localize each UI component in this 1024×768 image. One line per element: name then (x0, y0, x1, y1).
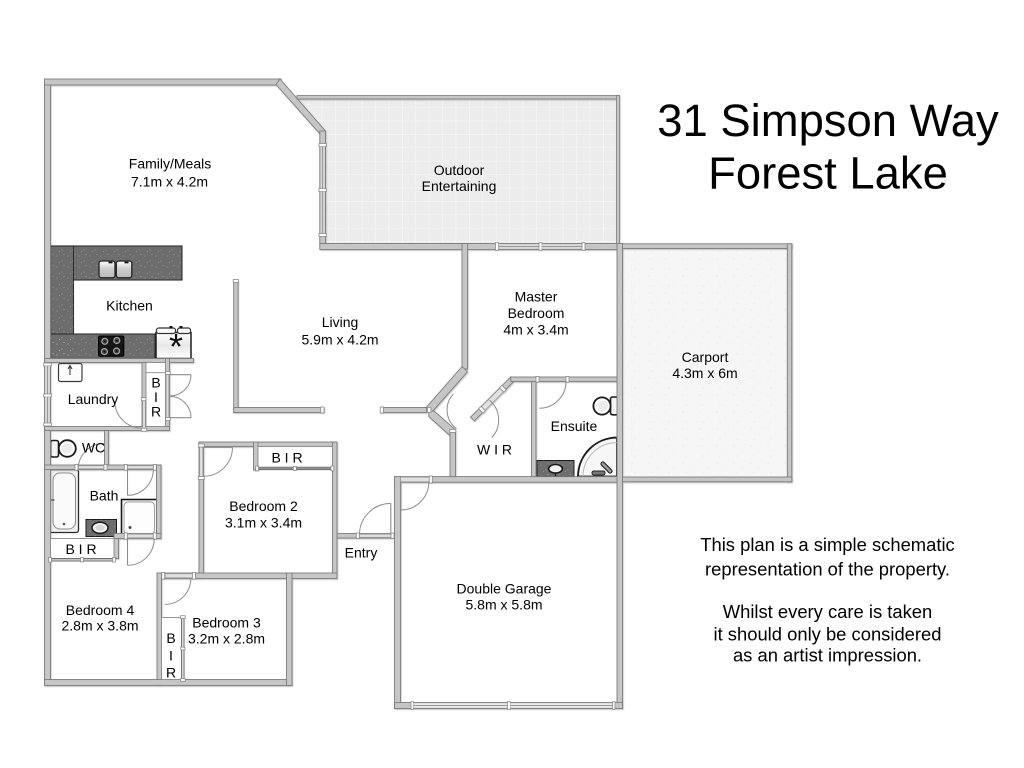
svg-text:Entry: Entry (345, 545, 378, 561)
svg-text:7.1m x 4.2m: 7.1m x 4.2m (131, 174, 208, 190)
svg-text:Laundry: Laundry (68, 391, 119, 407)
svg-text:representation of the property: representation of the property. (705, 559, 950, 580)
svg-text:Ensuite: Ensuite (551, 418, 598, 434)
svg-text:I: I (169, 648, 173, 664)
svg-text:Forest Lake: Forest Lake (708, 148, 948, 199)
svg-text:Double Garage: Double Garage (457, 581, 552, 597)
svg-text:Bedroom: Bedroom (508, 305, 565, 321)
svg-text:Bedroom 4: Bedroom 4 (66, 602, 135, 618)
svg-text:B I R: B I R (65, 541, 96, 557)
svg-text:W I R: W I R (477, 442, 512, 458)
svg-text:R: R (151, 404, 161, 420)
svg-text:WC: WC (82, 440, 105, 456)
svg-text:Bedroom 2: Bedroom 2 (229, 498, 298, 514)
svg-text:Bath: Bath (90, 488, 119, 504)
svg-text:Carport: Carport (682, 349, 729, 365)
svg-text:Kitchen: Kitchen (106, 298, 153, 314)
svg-text:Family/Meals: Family/Meals (129, 156, 211, 172)
svg-text:5.8m x 5.8m: 5.8m x 5.8m (465, 597, 542, 613)
svg-text:it should only be considered: it should only be considered (714, 624, 942, 645)
svg-text:B: B (166, 630, 175, 646)
svg-text:Bedroom 3: Bedroom 3 (192, 615, 261, 631)
svg-text:Outdoor: Outdoor (434, 162, 485, 178)
svg-text:3.1m x 3.4m: 3.1m x 3.4m (225, 515, 302, 531)
svg-text:4.3m x 6m: 4.3m x 6m (672, 365, 737, 381)
svg-text:3.2m x 2.8m: 3.2m x 2.8m (188, 631, 265, 647)
svg-text:Whilst every care is taken: Whilst every care is taken (723, 601, 933, 622)
svg-text:2.8m x 3.8m: 2.8m x 3.8m (61, 618, 138, 634)
svg-text:B I R: B I R (271, 450, 302, 466)
svg-text:5.9m x 4.2m: 5.9m x 4.2m (301, 332, 378, 348)
svg-text:Master: Master (515, 289, 558, 305)
svg-text:This plan is a simple schemati: This plan is a simple schematic (700, 534, 955, 555)
svg-text:R: R (166, 665, 176, 681)
svg-text:31 Simpson Way: 31 Simpson Way (657, 95, 999, 146)
svg-text:Entertaining: Entertaining (422, 178, 497, 194)
svg-text:Living: Living (322, 314, 359, 330)
svg-text:4m x 3.4m: 4m x 3.4m (503, 322, 568, 338)
svg-text:as an artist impression.: as an artist impression. (733, 645, 922, 666)
